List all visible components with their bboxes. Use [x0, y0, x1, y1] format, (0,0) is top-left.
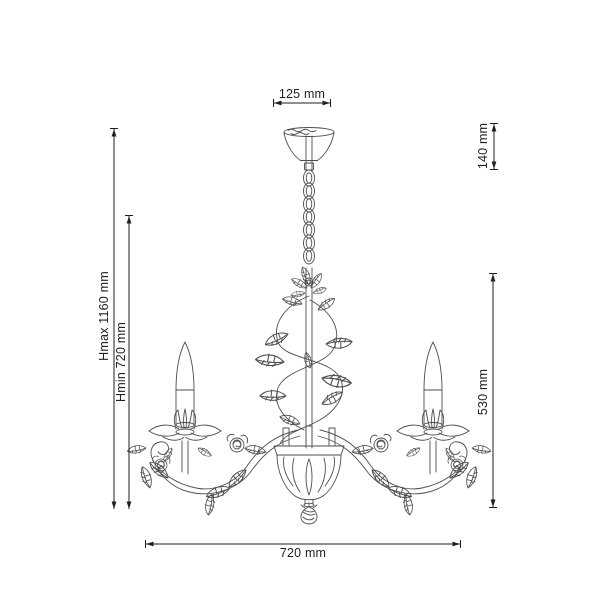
crown-leaves: [290, 267, 326, 298]
dim-label-body-height: 530 mm: [476, 369, 490, 415]
ceiling-canopy: [284, 128, 334, 171]
dim-label-bottom-width: 720 mm: [280, 546, 326, 560]
dim-label-min-height: Hmin 720 mm: [114, 322, 128, 402]
chandelier-lineart: [127, 128, 491, 524]
dim-label-top-width: 125 mm: [279, 87, 325, 101]
dimension-lines: [110, 99, 498, 548]
right-arm-candle: [318, 342, 491, 516]
left-arm-candle: [127, 342, 300, 516]
dim-label-max-height: Hmax 1160 mm: [97, 271, 111, 361]
drawing-canvas: 125 mm 140 mm Hmax 1160 mm Hmin 720 mm 5…: [0, 0, 600, 600]
central-column: [255, 268, 353, 448]
chain: [304, 170, 315, 264]
bottom-bowl: [274, 426, 344, 524]
dim-label-canopy-height: 140 mm: [476, 123, 490, 169]
